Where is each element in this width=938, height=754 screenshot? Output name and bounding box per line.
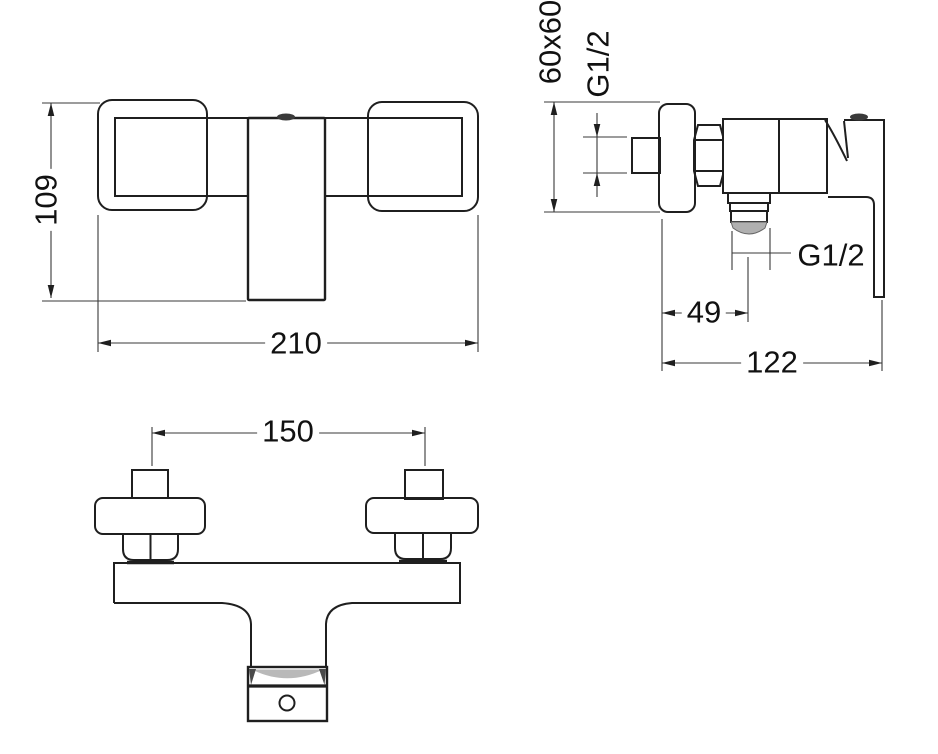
dim-label-offset-49: 49 bbox=[682, 297, 726, 330]
dim-label-depth-122: 122 bbox=[741, 347, 803, 380]
top-left-connection bbox=[95, 470, 205, 563]
top-body-outline bbox=[114, 563, 460, 666]
dim-label-centers-150: 150 bbox=[257, 416, 319, 449]
technical-drawing-canvas: 109 210 60x60 G1/2 G1/2 49 122 150 bbox=[0, 0, 938, 754]
side-connection-nut bbox=[694, 125, 724, 186]
side-handle-cap bbox=[850, 114, 868, 121]
front-valve-body bbox=[248, 118, 325, 300]
top-spout-cap bbox=[248, 667, 327, 721]
dim-label-escutcheon-60x60: 60x60 bbox=[535, 0, 568, 89]
front-top-knob bbox=[277, 114, 295, 121]
side-valve-body bbox=[723, 119, 827, 193]
side-inlet-stub bbox=[632, 138, 660, 173]
dim-label-inlet-thread-g12: G1/2 bbox=[583, 25, 616, 102]
dim-label-width-210: 210 bbox=[265, 328, 327, 361]
side-outlet-dome bbox=[731, 222, 767, 234]
front-view bbox=[98, 100, 478, 300]
side-view-dimensions bbox=[544, 102, 882, 371]
dim-label-outlet-thread-g12: G1/2 bbox=[792, 240, 869, 273]
top-right-connection bbox=[366, 470, 478, 562]
top-spout-hole bbox=[280, 696, 295, 711]
dim-label-height-109: 109 bbox=[31, 169, 64, 231]
side-escutcheon-plate bbox=[659, 104, 695, 212]
top-view bbox=[95, 470, 478, 721]
side-outlet bbox=[728, 193, 770, 234]
